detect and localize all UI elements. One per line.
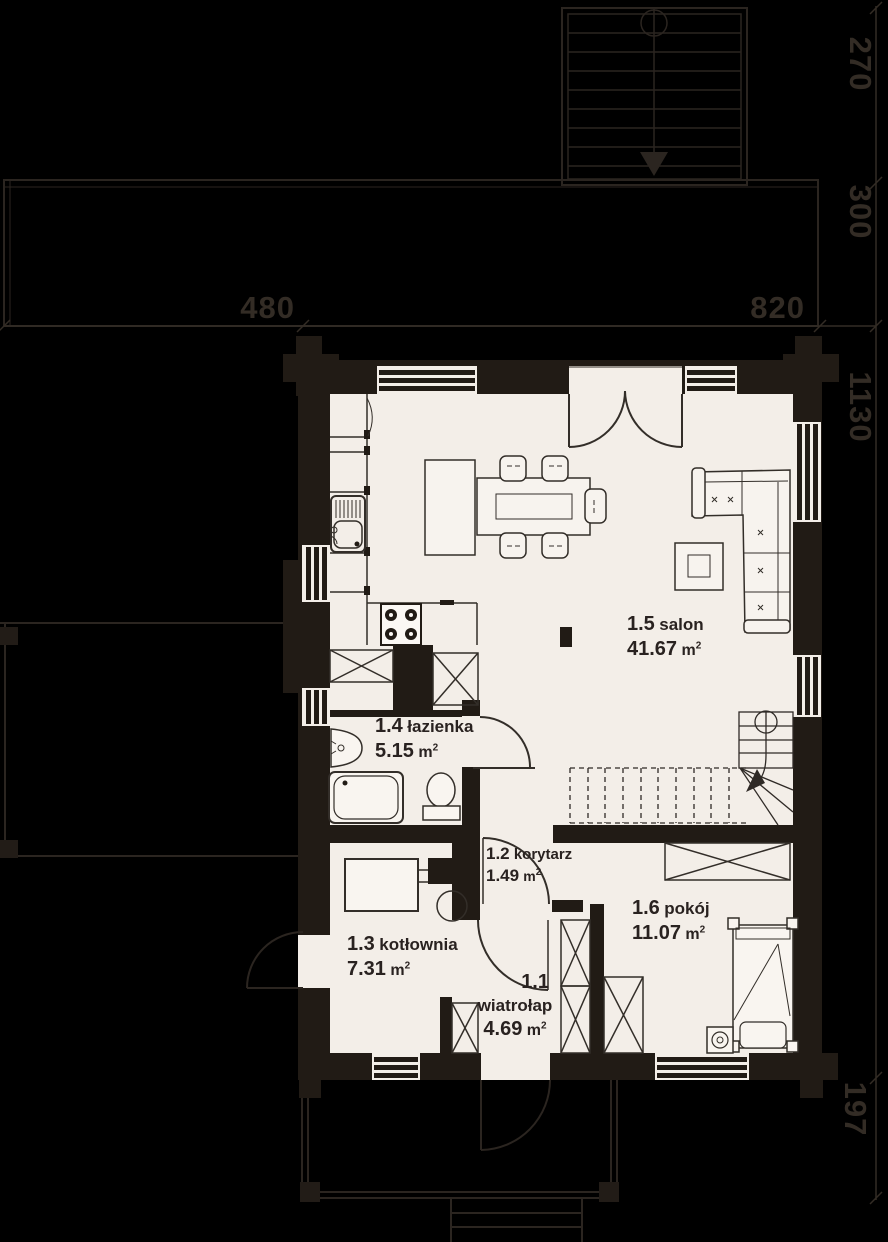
stove — [381, 604, 421, 645]
label-room-korytarz: 1.2 korytarz 1.49 m2 — [486, 843, 572, 887]
label-room-lazienka: 1.4 łazienka 5.15 m2 — [375, 714, 473, 764]
label-room-salon: 1.5 salon 41.67 m2 — [627, 612, 704, 662]
window-salon-right — [793, 422, 821, 522]
bed — [728, 918, 798, 1052]
pillow — [740, 1022, 786, 1048]
nightstand — [707, 1027, 733, 1053]
window-salon-top — [685, 366, 737, 394]
dim-porch-depth: 197 — [837, 1054, 873, 1164]
label-room-pokoj: 1.6 pokój 11.07 m2 — [632, 896, 710, 946]
dim-external-stairs: 270 — [842, 9, 878, 119]
label-room-wiatrolap: 1.1 wiatrołap 4.69 m2 — [467, 970, 563, 1042]
window-kotlownia-bottom — [372, 1053, 420, 1080]
window-kitchen-left — [302, 545, 330, 602]
door-entrance — [481, 1053, 550, 1150]
dim-width-left: 480 — [195, 290, 295, 326]
porch-outline — [300, 1062, 619, 1242]
door-kotlownia-side — [247, 932, 330, 988]
dim-upper-terrace: 300 — [842, 157, 878, 267]
window-stairs-right — [793, 655, 821, 717]
dining-table — [477, 478, 590, 535]
floor-plan-drawing — [0, 0, 888, 1242]
window-pokoj-bottom — [655, 1053, 749, 1080]
upper-terrace-outline — [4, 180, 818, 326]
left-terrace-outline — [0, 623, 302, 858]
coffee-table — [675, 543, 723, 590]
dim-house-depth: 1130 — [842, 352, 878, 462]
window-kitchen-top — [377, 366, 477, 394]
stairs-down-arrow-icon — [640, 152, 668, 176]
window-bathroom-left — [302, 688, 330, 726]
external-stairs — [562, 8, 747, 185]
floor-plan-canvas: 1.5 salon 41.67 m2 1.4 łazienka 5.15 m2 … — [0, 0, 888, 1242]
label-room-kotlownia: 1.3 kotłownia 7.31 m2 — [347, 932, 458, 982]
kitchen-island — [425, 460, 475, 555]
boiler-flue — [428, 858, 460, 884]
dim-width-right: 820 — [705, 290, 805, 326]
bathtub — [329, 772, 403, 823]
